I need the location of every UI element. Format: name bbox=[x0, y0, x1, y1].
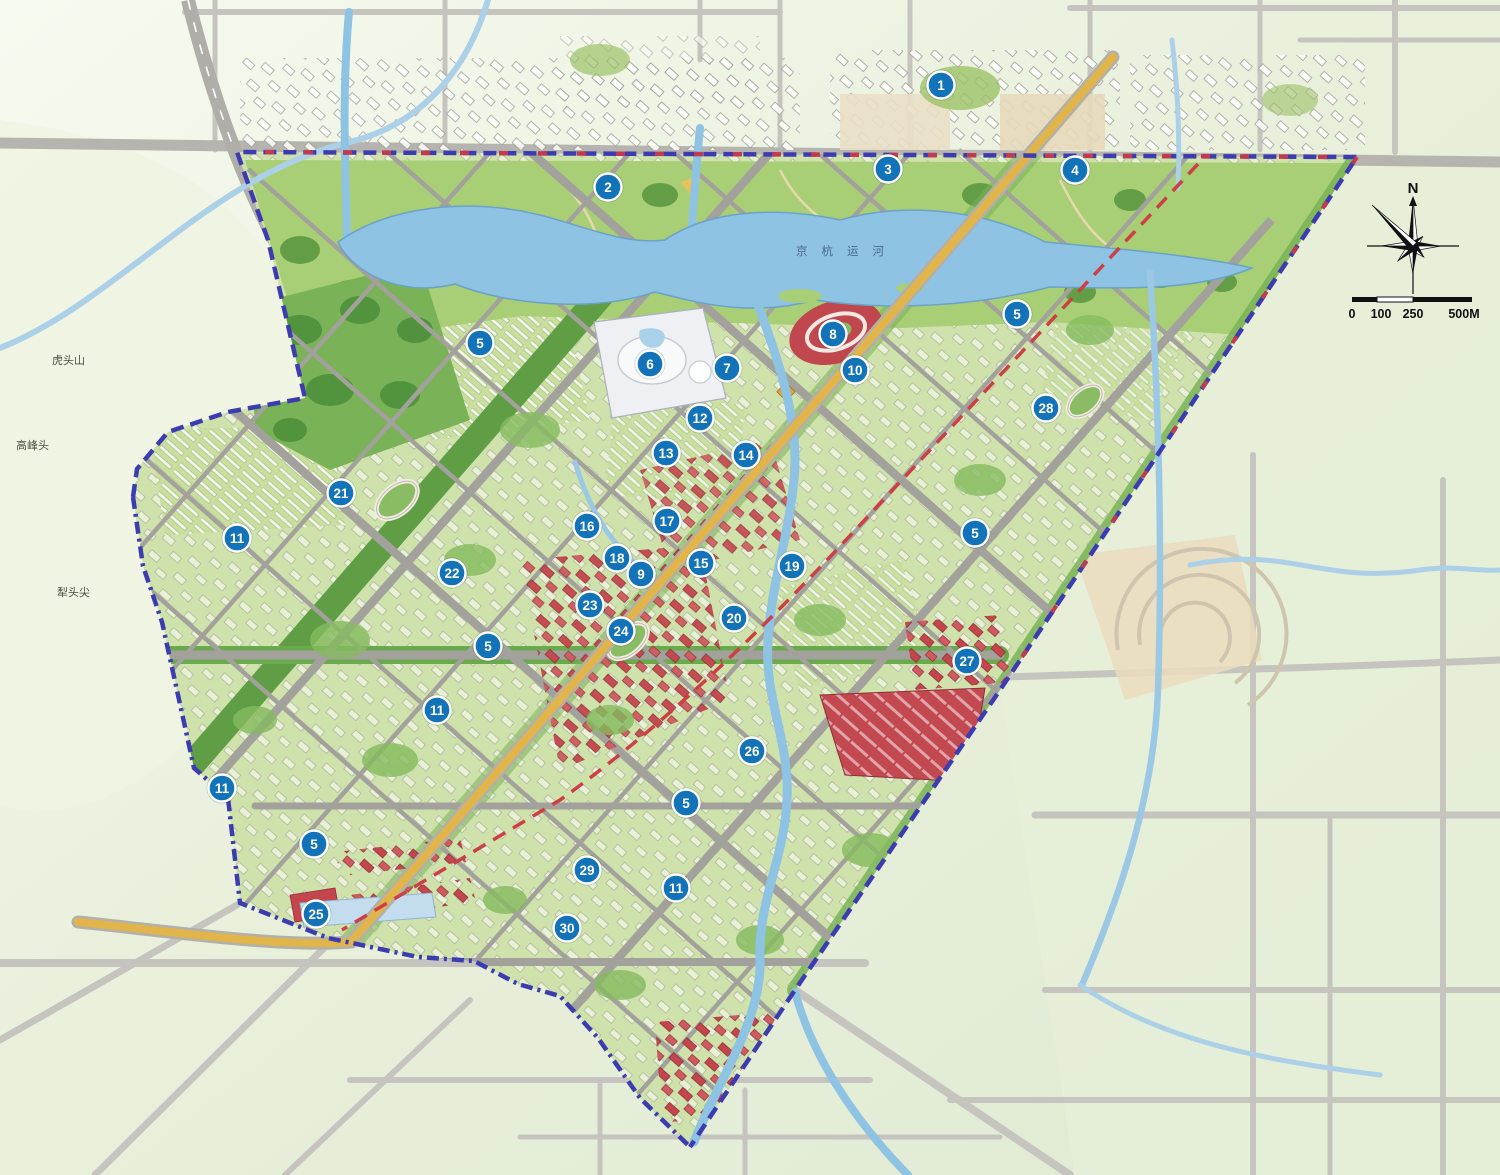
scale-tick-100: 100 bbox=[1371, 307, 1392, 321]
label-litoujian: 犁头尖 bbox=[57, 585, 90, 599]
svg-text:10: 10 bbox=[847, 363, 862, 378]
svg-text:17: 17 bbox=[659, 514, 674, 529]
svg-text:1: 1 bbox=[937, 78, 945, 93]
svg-text:23: 23 bbox=[582, 598, 598, 613]
map-marker-11: 11 bbox=[661, 873, 692, 904]
scale-tick-250: 250 bbox=[1403, 307, 1424, 321]
map-marker-11: 11 bbox=[222, 523, 253, 554]
svg-text:19: 19 bbox=[784, 559, 799, 574]
svg-text:5: 5 bbox=[310, 837, 318, 852]
map-marker-19: 19 bbox=[777, 551, 808, 582]
scale-tick-500m: 500M bbox=[1448, 307, 1479, 321]
svg-text:24: 24 bbox=[613, 624, 629, 639]
map-marker-5: 5 bbox=[299, 829, 330, 860]
svg-text:6: 6 bbox=[646, 357, 654, 372]
map-marker-17: 17 bbox=[652, 506, 683, 537]
map-marker-18: 18 bbox=[602, 543, 633, 574]
svg-text:18: 18 bbox=[609, 551, 625, 566]
map-marker-14: 14 bbox=[731, 440, 762, 471]
map-marker-27: 27 bbox=[952, 646, 983, 677]
svg-text:5: 5 bbox=[682, 796, 690, 811]
map-marker-7: 7 bbox=[712, 353, 743, 384]
svg-text:11: 11 bbox=[230, 531, 245, 546]
map-marker-4: 4 bbox=[1060, 155, 1091, 186]
label-hutoushan: 虎头山 bbox=[52, 354, 85, 367]
map-marker-1: 1 bbox=[926, 70, 957, 101]
svg-text:25: 25 bbox=[308, 907, 324, 922]
map-marker-24: 24 bbox=[606, 616, 637, 647]
label-canal-name: 京杭运河 bbox=[796, 244, 898, 258]
map-marker-20: 20 bbox=[719, 603, 750, 634]
svg-text:21: 21 bbox=[333, 486, 349, 501]
map-marker-10: 10 bbox=[840, 355, 871, 386]
map-marker-26: 26 bbox=[737, 736, 768, 767]
svg-text:5: 5 bbox=[1013, 307, 1021, 322]
map-marker-2: 2 bbox=[593, 172, 624, 203]
map-marker-30: 30 bbox=[552, 913, 583, 944]
map-marker-16: 16 bbox=[572, 511, 603, 542]
compass-north-label: N bbox=[1408, 180, 1419, 197]
map-marker-22: 22 bbox=[437, 558, 468, 589]
svg-text:28: 28 bbox=[1038, 401, 1054, 416]
svg-text:14: 14 bbox=[738, 448, 754, 463]
svg-text:5: 5 bbox=[484, 639, 492, 654]
svg-text:15: 15 bbox=[693, 556, 709, 571]
svg-text:2: 2 bbox=[604, 180, 612, 195]
master-plan-map: 虎头山 高峰头 犁头尖 京杭运河 N 0 100 250 500M 123455… bbox=[0, 0, 1500, 1175]
map-marker-15: 15 bbox=[686, 548, 717, 579]
map-marker-11: 11 bbox=[207, 773, 238, 804]
svg-text:11: 11 bbox=[215, 781, 230, 796]
map-marker-25: 25 bbox=[301, 899, 332, 930]
map-canvas: 虎头山 高峰头 犁头尖 京杭运河 N 0 100 250 500M 123455… bbox=[0, 0, 1500, 1175]
svg-text:7: 7 bbox=[723, 361, 731, 376]
map-marker-29: 29 bbox=[572, 855, 603, 886]
svg-text:27: 27 bbox=[959, 654, 974, 669]
map-marker-5: 5 bbox=[671, 788, 702, 819]
svg-text:3: 3 bbox=[884, 162, 892, 177]
svg-text:9: 9 bbox=[637, 567, 645, 582]
svg-text:29: 29 bbox=[579, 863, 594, 878]
map-marker-8: 8 bbox=[818, 319, 849, 350]
map-marker-5: 5 bbox=[473, 631, 504, 662]
svg-text:11: 11 bbox=[430, 703, 445, 718]
map-marker-3: 3 bbox=[873, 154, 904, 185]
svg-text:16: 16 bbox=[579, 519, 595, 534]
map-marker-28: 28 bbox=[1031, 393, 1062, 424]
map-marker-5: 5 bbox=[465, 328, 496, 359]
svg-text:30: 30 bbox=[559, 921, 574, 936]
svg-text:22: 22 bbox=[444, 566, 459, 581]
svg-text:20: 20 bbox=[726, 611, 741, 626]
map-marker-5: 5 bbox=[960, 518, 991, 549]
label-gaofengtou: 高峰头 bbox=[16, 438, 49, 452]
svg-text:4: 4 bbox=[1071, 163, 1079, 178]
map-marker-13: 13 bbox=[651, 438, 682, 469]
map-marker-21: 21 bbox=[326, 478, 357, 509]
svg-text:8: 8 bbox=[829, 327, 837, 342]
svg-text:12: 12 bbox=[692, 411, 707, 426]
map-marker-12: 12 bbox=[685, 403, 716, 434]
svg-text:13: 13 bbox=[658, 446, 674, 461]
map-marker-11: 11 bbox=[422, 695, 453, 726]
map-marker-23: 23 bbox=[575, 590, 606, 621]
map-marker-5: 5 bbox=[1002, 299, 1033, 330]
svg-text:5: 5 bbox=[971, 526, 979, 541]
scale-tick-0: 0 bbox=[1349, 307, 1356, 321]
svg-text:26: 26 bbox=[744, 744, 760, 759]
svg-text:11: 11 bbox=[669, 881, 684, 896]
map-marker-6: 6 bbox=[635, 349, 666, 380]
svg-text:5: 5 bbox=[476, 336, 484, 351]
